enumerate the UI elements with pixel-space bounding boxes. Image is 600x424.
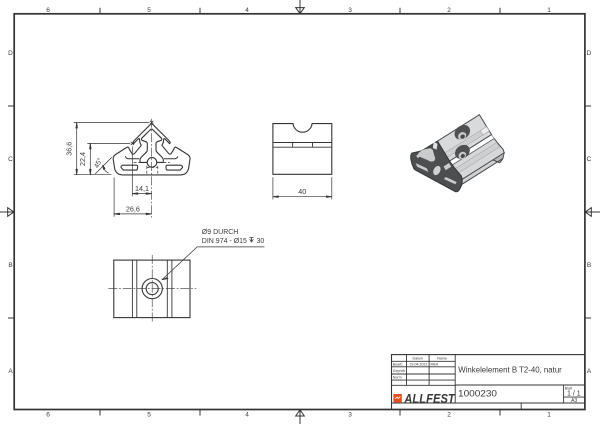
svg-text:40: 40 xyxy=(298,187,306,196)
svg-text:A3: A3 xyxy=(571,398,577,404)
svg-text:Bearb.: Bearb. xyxy=(393,362,404,366)
svg-text:MEA: MEA xyxy=(431,362,439,366)
svg-text:B: B xyxy=(8,262,12,269)
svg-text:22,4: 22,4 xyxy=(78,152,87,166)
svg-text:1: 1 xyxy=(547,412,551,419)
svg-text:C: C xyxy=(8,156,13,163)
svg-text:DIN 974 - Ø15: DIN 974 - Ø15 xyxy=(202,238,247,245)
svg-text:26,6: 26,6 xyxy=(126,205,140,214)
svg-text:ALLFEST: ALLFEST xyxy=(403,392,456,406)
svg-text:14,1: 14,1 xyxy=(135,184,149,193)
svg-text:6: 6 xyxy=(46,412,50,419)
svg-text:3: 3 xyxy=(348,7,352,14)
svg-text:5: 5 xyxy=(147,7,151,14)
svg-text:Geprüft: Geprüft xyxy=(393,369,405,373)
svg-text:4: 4 xyxy=(245,412,249,419)
svg-text:Datum: Datum xyxy=(413,356,424,360)
svg-text:Winkelelement B T2-40, natur: Winkelelement B T2-40, natur xyxy=(458,364,562,374)
svg-text:4: 4 xyxy=(245,7,249,14)
svg-text:29.04.2021: 29.04.2021 xyxy=(410,362,428,366)
svg-text:45°: 45° xyxy=(93,157,105,170)
svg-text:36,6: 36,6 xyxy=(65,142,74,156)
svg-text:1: 1 xyxy=(547,7,551,14)
svg-text:C: C xyxy=(587,156,592,163)
svg-text:3: 3 xyxy=(348,412,352,419)
svg-text:D: D xyxy=(8,50,13,57)
svg-text:A: A xyxy=(8,368,13,375)
svg-text:2: 2 xyxy=(447,412,451,419)
svg-text:A: A xyxy=(587,368,592,375)
svg-text:1 / 1: 1 / 1 xyxy=(567,391,581,398)
svg-text:B: B xyxy=(587,262,591,269)
svg-text:Ø9 DURCH: Ø9 DURCH xyxy=(202,229,239,236)
svg-text:5: 5 xyxy=(147,412,151,419)
svg-text:Name: Name xyxy=(437,356,447,360)
svg-text:D: D xyxy=(587,50,592,57)
svg-text:2: 2 xyxy=(447,7,451,14)
svg-text:Norm: Norm xyxy=(393,376,402,380)
svg-text:1000230: 1000230 xyxy=(458,389,497,399)
svg-text:30: 30 xyxy=(257,238,265,245)
svg-text:6: 6 xyxy=(46,7,50,14)
